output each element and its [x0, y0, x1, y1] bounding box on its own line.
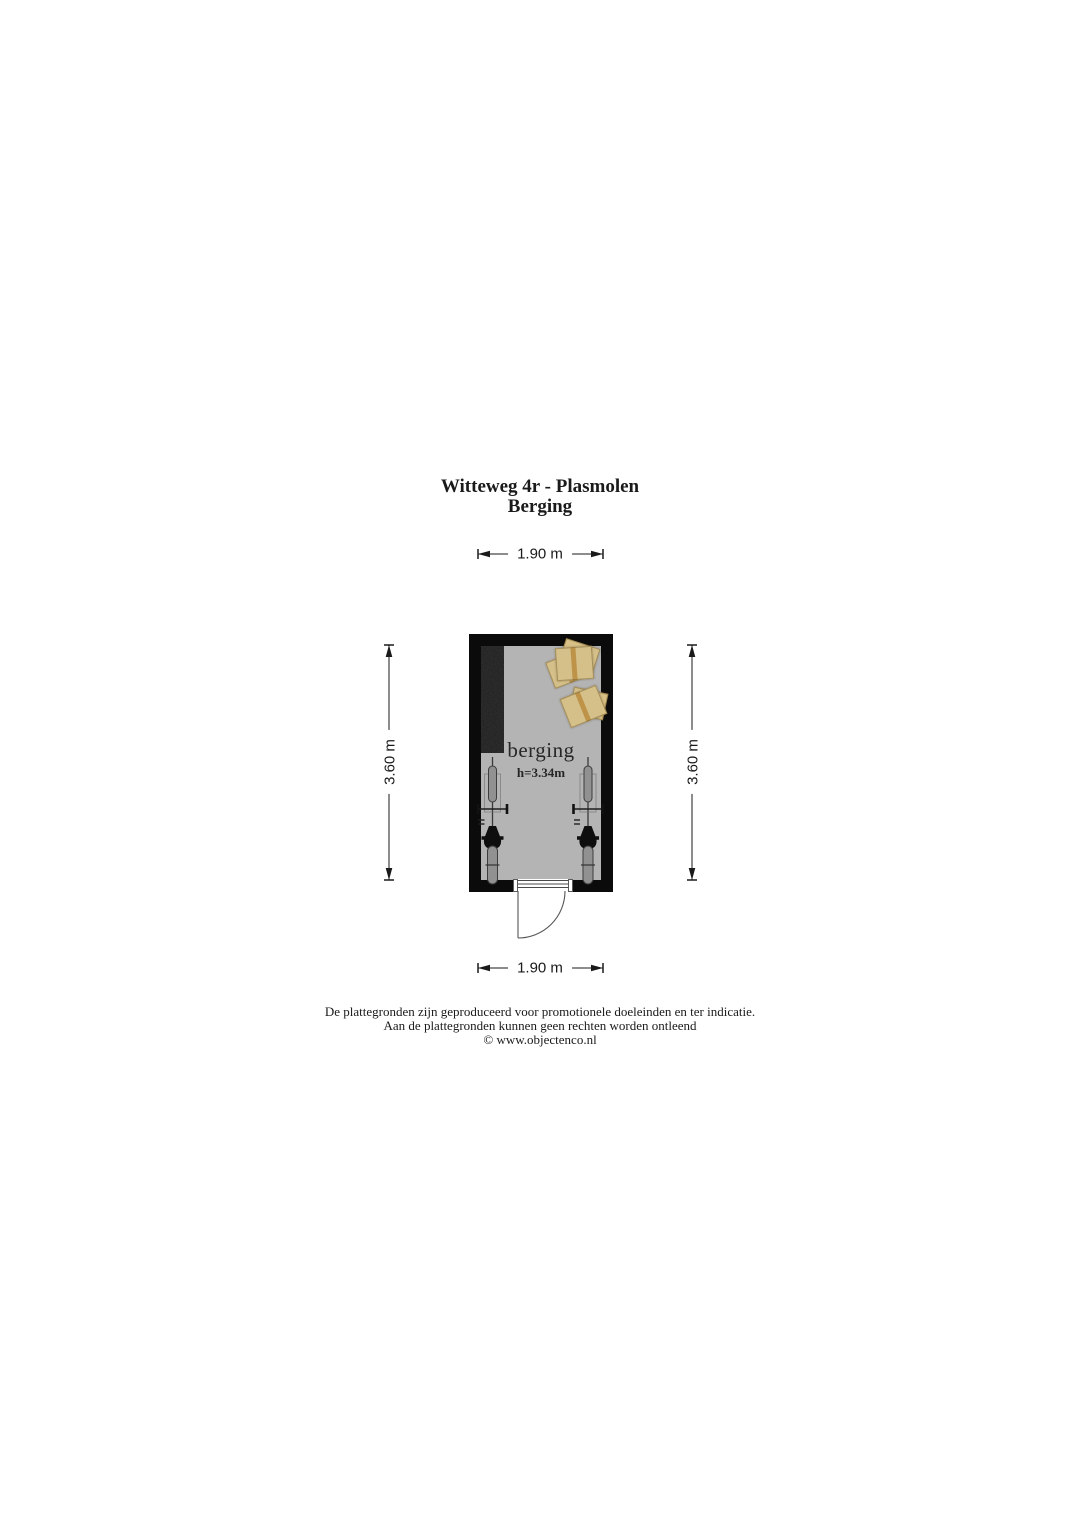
page-subtitle: Berging	[0, 497, 1080, 517]
room-label: berging h=3.34m	[481, 740, 601, 779]
room-name: berging	[481, 740, 601, 761]
dimension-label-right: 3.60 m	[685, 730, 702, 794]
page-title: Witteweg 4r - Plasmolen	[0, 477, 1080, 497]
cardboard-box	[555, 646, 594, 682]
dimension-label-bottom: 1.90 m	[508, 960, 572, 977]
footer-disclaimer: De plattegronden zijn geproduceerd voor …	[0, 1005, 1080, 1047]
floorplan-page: Witteweg 4r - Plasmolen Berging berging …	[0, 0, 1080, 1527]
copyright-line: © www.objectenco.nl	[0, 1033, 1080, 1047]
title-block: Witteweg 4r - Plasmolen Berging	[0, 477, 1080, 517]
dimension-label-left: 3.60 m	[382, 730, 399, 794]
disclaimer-line-1: De plattegronden zijn geproduceerd voor …	[0, 1005, 1080, 1019]
door-swing-arc	[518, 891, 565, 938]
dimension-label-top: 1.90 m	[508, 546, 572, 563]
storage-cabinet	[481, 646, 504, 753]
room-height-label: h=3.34m	[481, 766, 601, 779]
disclaimer-line-2: Aan de plattegronden kunnen geen rechten…	[0, 1019, 1080, 1033]
